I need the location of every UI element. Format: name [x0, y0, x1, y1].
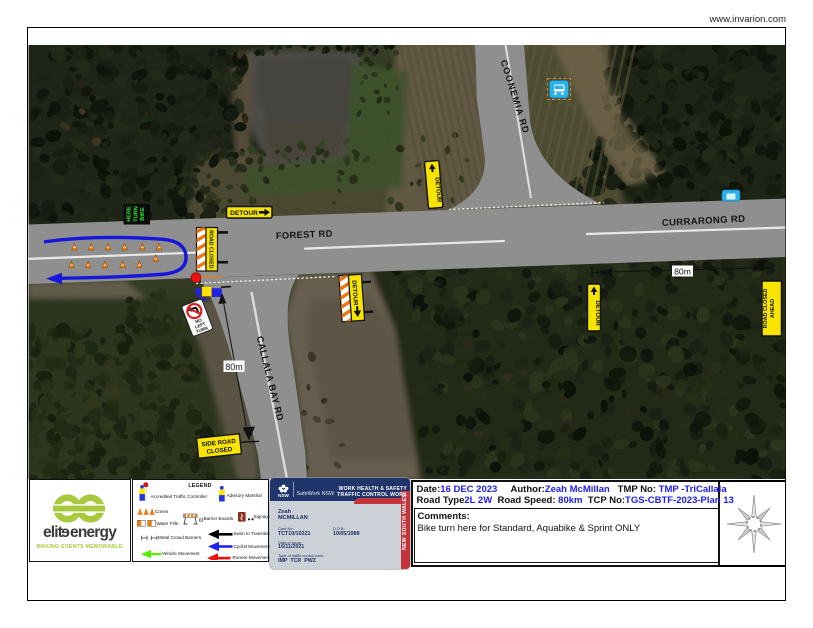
svg-text:80m: 80m: [225, 362, 243, 372]
svg-text:ROAD CLOSED: ROAD CLOSED: [208, 230, 214, 269]
svg-text:HERE: HERE: [127, 206, 133, 222]
svg-text:DETOUR: DETOUR: [230, 210, 258, 217]
svg-text:BIKE: BIKE: [140, 207, 146, 221]
svg-text:ROAD CLOSED: ROAD CLOSED: [763, 288, 769, 328]
svg-text:DETOUR: DETOUR: [594, 301, 600, 327]
svg-text:TURN: TURN: [133, 206, 139, 222]
svg-text:AHEAD: AHEAD: [770, 299, 776, 318]
svg-text:80m: 80m: [674, 266, 691, 276]
svg-text:NSW: NSW: [278, 493, 289, 498]
